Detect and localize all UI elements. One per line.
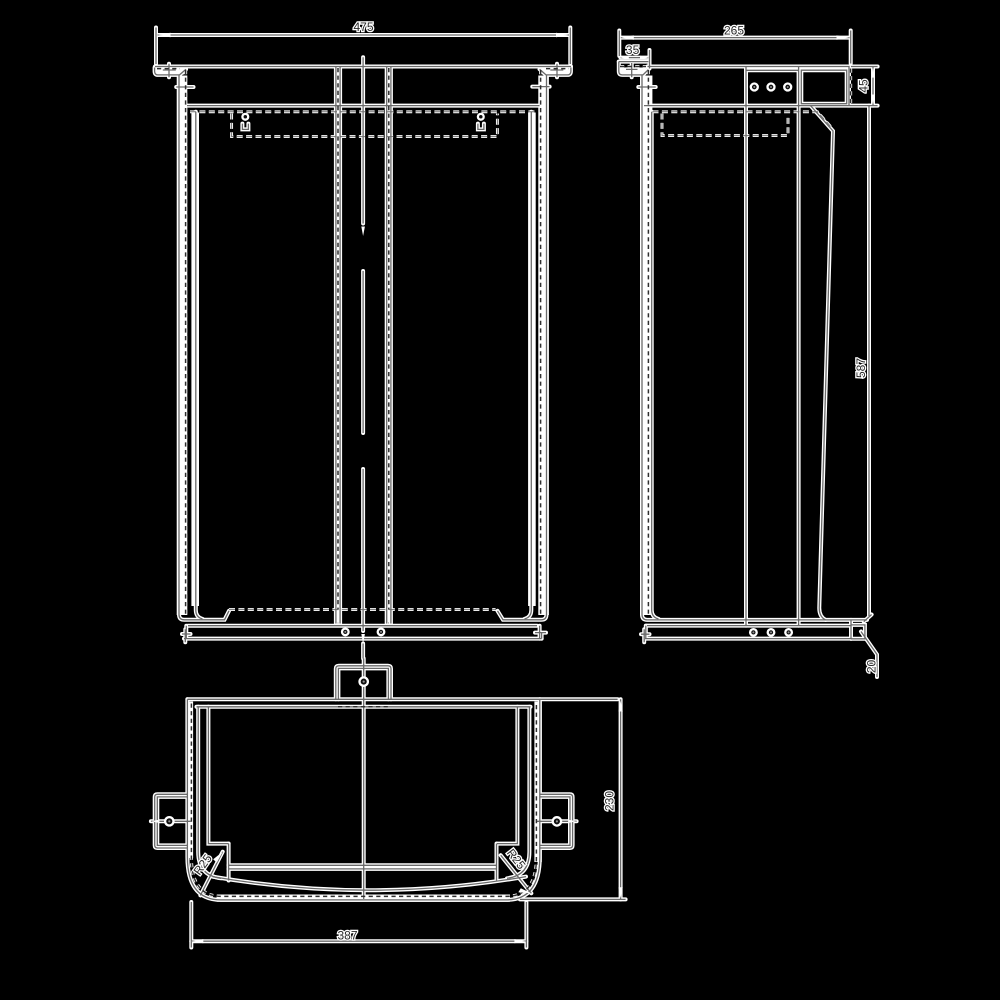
svg-text:475: 475 [353,20,373,34]
svg-text:265: 265 [724,24,744,38]
svg-text:35: 35 [626,43,640,57]
svg-text:587: 587 [854,358,868,378]
svg-text:230: 230 [603,791,617,811]
svg-text:45: 45 [857,79,871,93]
svg-text:20: 20 [865,660,879,674]
svg-text:387: 387 [337,928,357,942]
